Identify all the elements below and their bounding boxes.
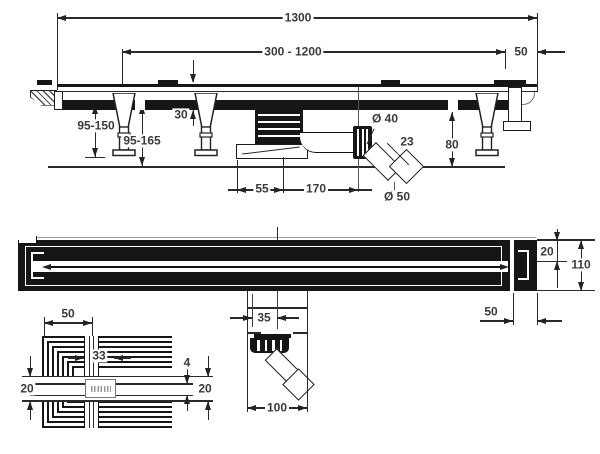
arrow-left-icon [122,49,131,55]
arrow-left-icon [57,15,66,21]
arrow-right-icon [349,187,358,193]
fixing-clip [37,80,52,85]
arrow-right-icon [83,320,92,326]
arrow-up-icon [27,401,33,410]
arrow-right-icon [274,187,283,193]
dim-label-plan-edge: 20 [538,245,555,258]
arrow-up-icon [205,401,211,410]
arrow-up-icon [184,395,190,404]
dim-label-grate-width: 33 [90,349,107,362]
end-cap-bracket [518,250,529,280]
dim-label-corner-edge: 50 [59,307,76,320]
dim-label-outlet-x: 170 [304,182,328,195]
arrow-right-icon [504,318,513,324]
dim-label-body: 100 [265,401,289,414]
technical-drawing: 1300 300 - 1200 50 [0,0,600,454]
dim-label-total: 1300 [283,11,314,24]
brand-plate [85,379,116,398]
outlet-nut-front [250,338,289,353]
corner-notch [19,236,37,244]
channel-grate [57,84,537,87]
fixing-clip [494,80,526,85]
outlet-pipe-end [389,149,424,184]
slot-centerline [46,266,506,268]
fixing-clip [381,80,400,85]
arrow-down-icon [184,375,190,384]
right-end-foot [503,121,531,131]
adjustable-leg [191,93,221,161]
arrow-up-icon [578,240,584,249]
dim-label-plan-end: 50 [482,305,499,318]
arrow-right-icon [243,315,252,321]
dim-label-band-right: 20 [196,382,213,395]
dim-label-outlet-dia: Ø 40 [370,112,400,125]
arrow-down-icon [27,368,33,377]
adjustable-leg [472,93,502,161]
arrow-up-icon [449,112,455,121]
dim-label-pipe: 23 [398,135,415,148]
arrow-down-icon [205,368,211,377]
outlet-pipe-horizontal [300,132,358,153]
arrow-right-icon [75,355,84,361]
dim-label-install: 95-165 [121,134,162,147]
arrow-down-icon [190,74,196,83]
floor-line [48,166,505,168]
dim-label-plan-width: 110 [569,258,592,271]
dim-label-pipe-dia: Ø 50 [382,190,412,203]
arrow-left-icon [537,49,546,55]
dim-label-grate-height: 30 [172,108,189,121]
arrow-left-icon [114,355,123,361]
dim-label-slot: 4 [182,356,193,369]
arrow-down-icon [578,282,584,291]
arrow-right-icon [496,49,505,55]
edge-curve [522,92,535,105]
dim-label-trap: 55 [253,182,270,195]
dim-label-band-left: 20 [18,382,35,395]
arrow-up-icon [554,261,560,270]
arrow-right-icon [528,15,537,21]
dim-label-end: 50 [512,45,529,58]
left-end-post [54,91,63,110]
arrow-left-icon [537,318,546,324]
arrow-left-icon [237,187,246,193]
arrow-down-icon [554,232,560,241]
trap-housing [255,100,303,147]
arrow-left-icon [44,320,53,326]
arrow-left-icon [247,405,256,411]
arrow-right-icon [298,405,307,411]
logo-mark [91,386,111,392]
left-end-seal [30,90,57,106]
centerline-tick [277,227,278,240]
arrow-left-icon [42,264,51,270]
dim-label-adjust: 300 - 1200 [262,45,323,58]
dim-label-leg: 95-150 [75,119,116,132]
arrow-left-icon [277,315,286,321]
dim-label-height: 80 [443,138,460,151]
arrow-down-icon [139,157,145,166]
arrow-right-icon [500,264,509,270]
arrow-down-icon [92,148,98,157]
dim-label-offset: 35 [255,311,272,324]
fixing-clip [158,80,178,85]
